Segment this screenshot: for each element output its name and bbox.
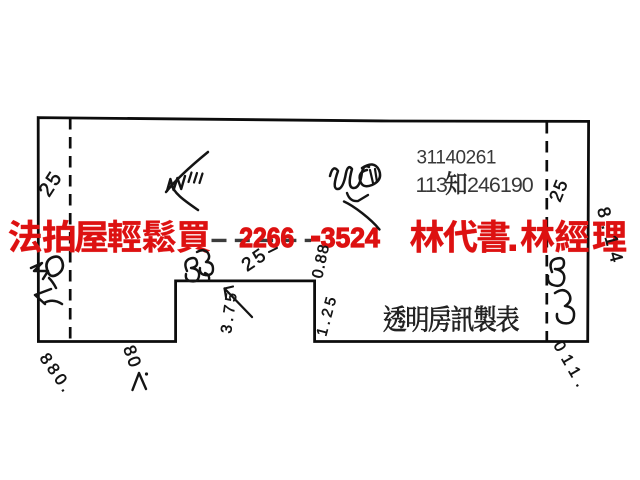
svg-text:1.25: 1.25 (313, 292, 341, 338)
svg-text:0.88: 0.88 (309, 242, 333, 280)
svg-text:25: 25 (545, 176, 572, 205)
svg-text:011.: 011. (550, 339, 593, 396)
svg-text:2266: 2266 (239, 222, 294, 253)
svg-text:80: 80 (119, 343, 146, 372)
svg-text:246190: 246190 (467, 173, 534, 197)
svg-text:880.: 880. (36, 350, 77, 398)
svg-text:113: 113 (416, 173, 448, 197)
svg-text:31140261: 31140261 (417, 148, 497, 169)
